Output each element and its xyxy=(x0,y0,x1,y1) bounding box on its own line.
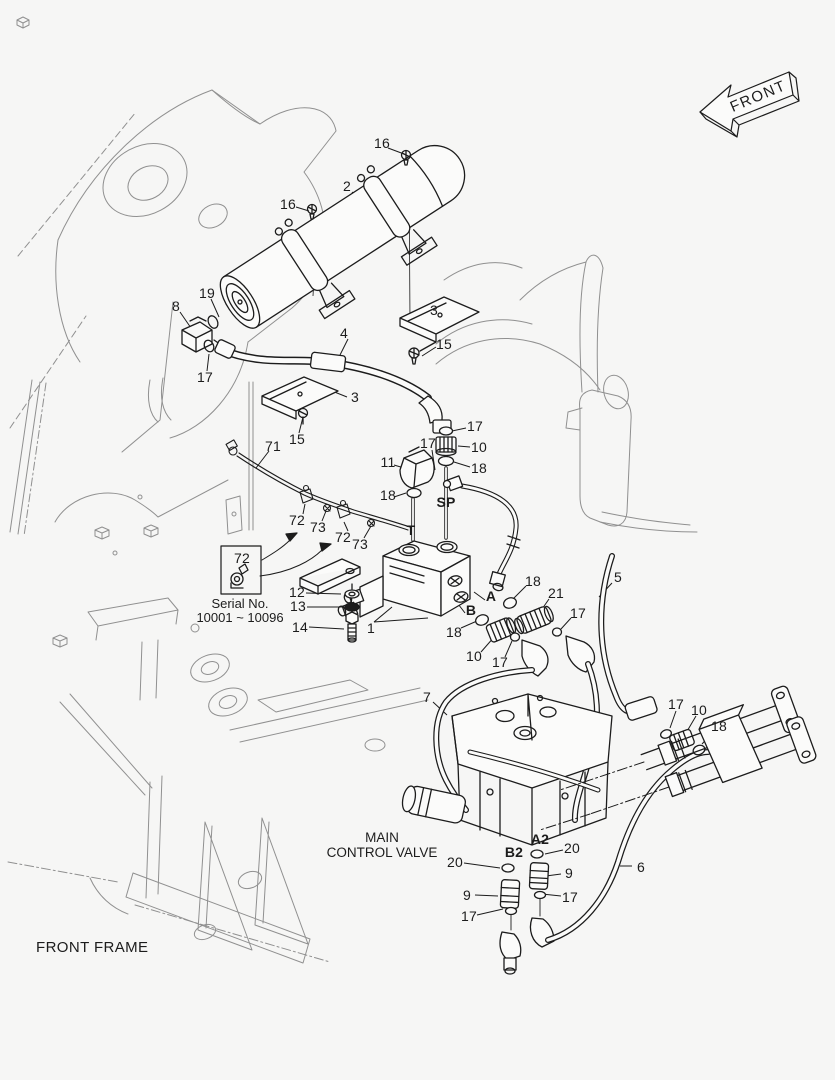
front-arrow-label: FRONT xyxy=(728,77,789,116)
wire-71 xyxy=(226,440,410,530)
mcv-caption-line2: CONTROL VALVE xyxy=(327,845,438,860)
serial-box-ref-72: 72 xyxy=(234,550,250,566)
bracket-3-left xyxy=(262,377,338,424)
main-control-valve xyxy=(400,694,612,845)
front-direction-arrow: FRONT xyxy=(700,72,799,137)
mcv-caption-line1: MAIN xyxy=(327,830,438,845)
front-frame-caption: FRONT FRAME xyxy=(36,939,148,956)
serial-number-note: Serial No. 10001 ~ 10096 xyxy=(196,597,283,625)
exploded-view-drawing: FRONT xyxy=(0,0,835,1080)
background-frame-linework xyxy=(8,17,697,963)
b2-port-fittings xyxy=(500,864,521,974)
a2-port-fittings xyxy=(529,850,554,947)
parts-diagram-page: FRONT 1621619834151731571171710111818SP7… xyxy=(0,0,835,1080)
serial-number-range: 10001 ~ 10096 xyxy=(196,611,283,625)
parts-linework: FRONT xyxy=(182,72,817,974)
main-control-valve-caption: MAIN CONTROL VALVE xyxy=(327,830,438,860)
bracket-3-right xyxy=(400,297,479,364)
serial-number-title: Serial No. xyxy=(196,597,283,611)
twin-tube-assembly xyxy=(636,684,817,815)
